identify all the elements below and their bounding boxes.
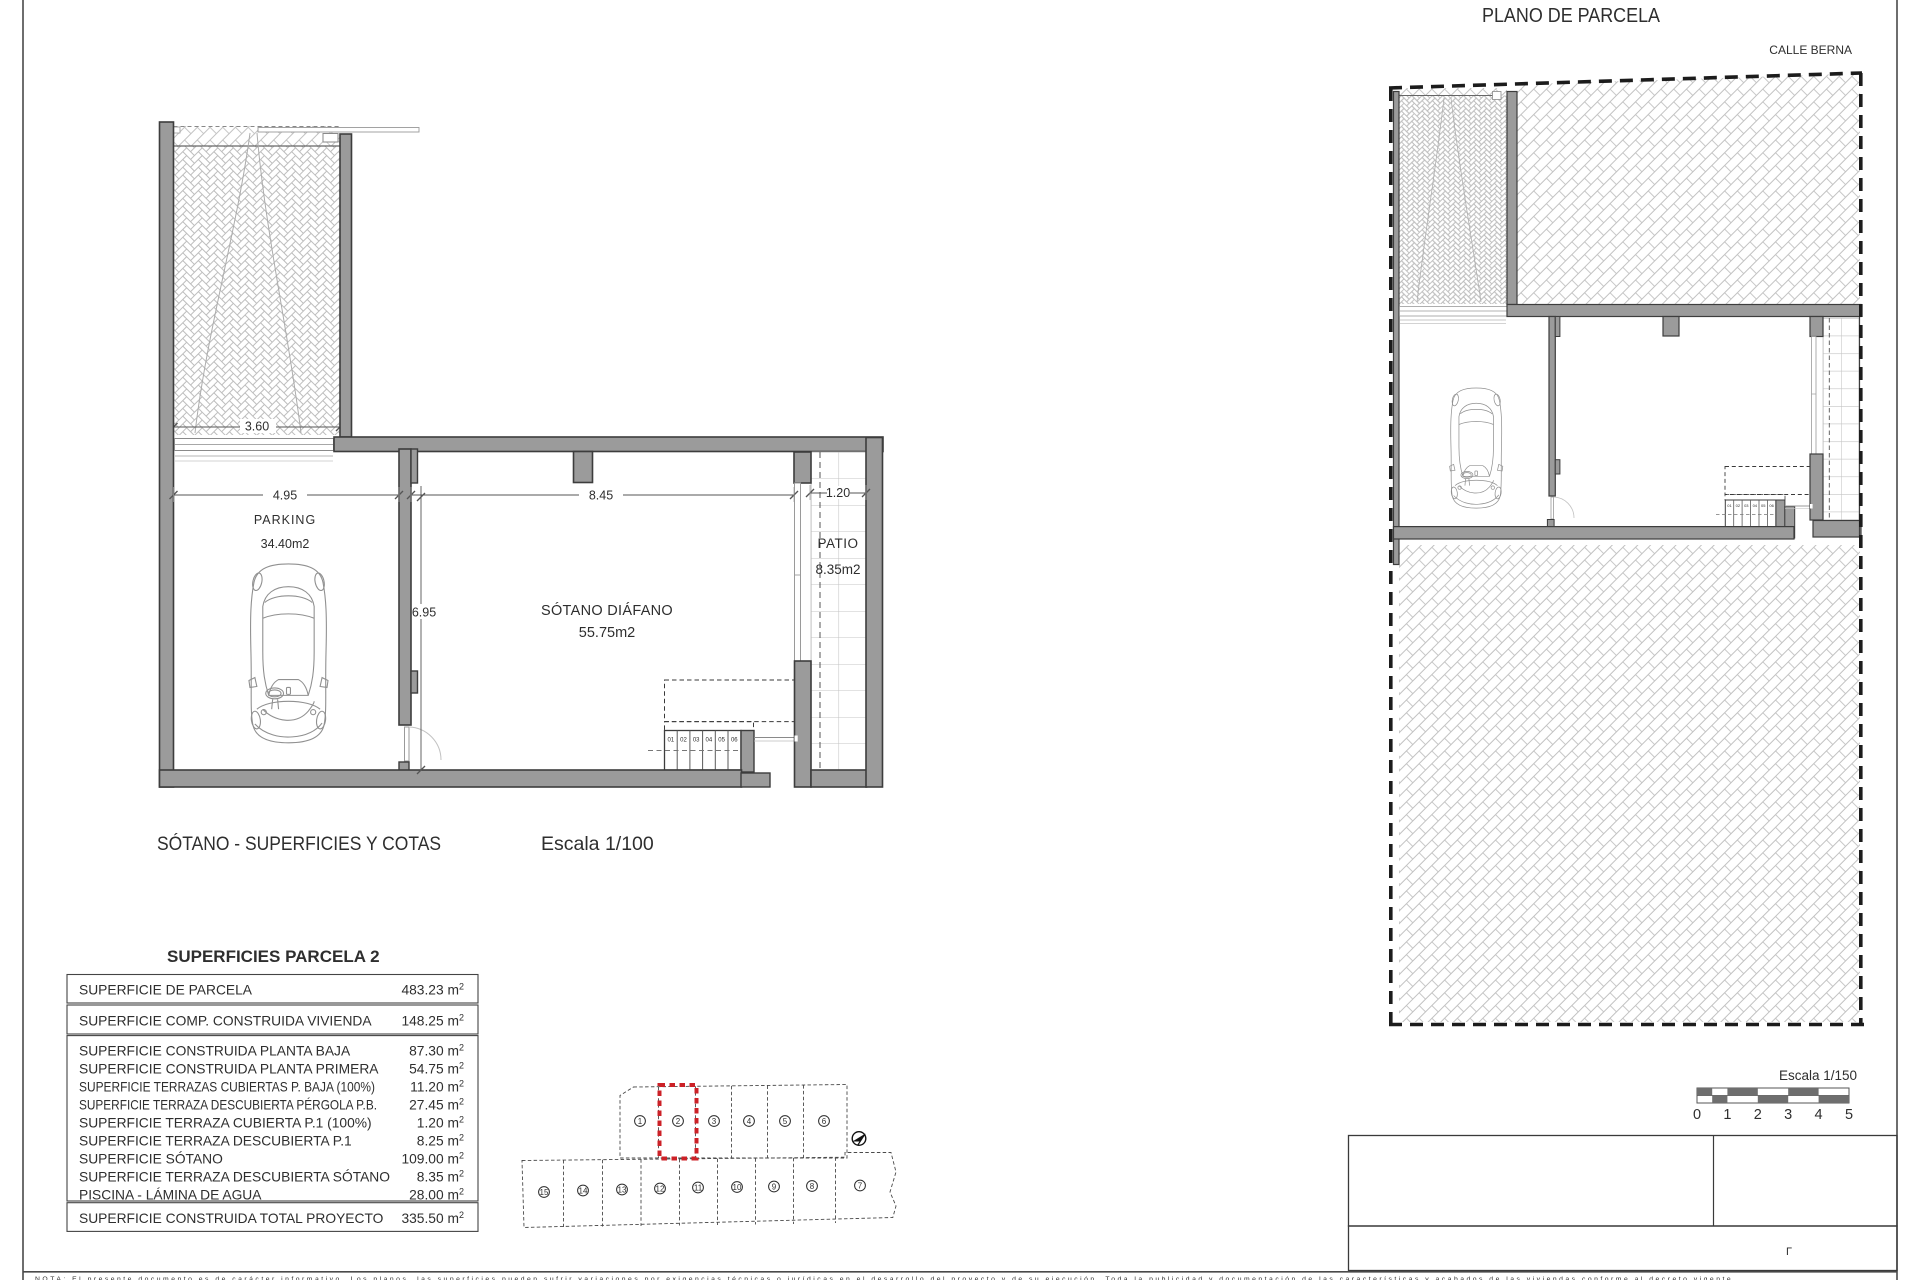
svg-text:1.20: 1.20 <box>826 486 850 500</box>
svg-text:34.40m2: 34.40m2 <box>261 537 310 551</box>
svg-text:SUPERFICIE DE PARCELA: SUPERFICIE DE PARCELA <box>79 983 253 998</box>
svg-text:4.95: 4.95 <box>273 489 297 503</box>
svg-text:8.25 m2: 8.25 m2 <box>417 1133 464 1149</box>
svg-text:SUPERFICIE CONSTRUIDA PLANTA P: SUPERFICIE CONSTRUIDA PLANTA PRIMERA <box>79 1062 379 1077</box>
svg-text:7: 7 <box>858 1182 863 1191</box>
svg-text:Escala 1/100: Escala 1/100 <box>541 833 654 855</box>
svg-text:03: 03 <box>693 738 700 744</box>
svg-text:2: 2 <box>676 1117 681 1126</box>
svg-text:2: 2 <box>1754 1107 1762 1123</box>
svg-text:06: 06 <box>1769 503 1774 508</box>
svg-text:SUPERFICIE TERRAZAS CUBIERTAS: SUPERFICIE TERRAZAS CUBIERTAS P. BAJA (1… <box>79 1080 375 1095</box>
svg-text:8: 8 <box>810 1182 815 1191</box>
svg-text:6.95: 6.95 <box>412 606 436 620</box>
svg-text:SÓTANO DIÁFANO: SÓTANO DIÁFANO <box>541 602 673 619</box>
svg-text:1: 1 <box>638 1117 643 1126</box>
svg-text:PISCINA - LÁMINA DE AGUA: PISCINA - LÁMINA DE AGUA <box>79 1187 262 1203</box>
svg-text:28.00 m2: 28.00 m2 <box>409 1187 464 1203</box>
svg-text:14: 14 <box>579 1187 588 1196</box>
svg-text:06: 06 <box>731 738 738 744</box>
svg-text:02: 02 <box>680 738 687 744</box>
svg-text:SUPERFICIE COMP. CONSTRUIDA VI: SUPERFICIE COMP. CONSTRUIDA VIVIENDA <box>79 1014 372 1029</box>
svg-text:SUPERFICIES PARCELA 2: SUPERFICIES PARCELA 2 <box>167 947 380 966</box>
svg-text:8.35m2: 8.35m2 <box>815 562 860 577</box>
svg-text:335.50 m2: 335.50 m2 <box>401 1210 464 1226</box>
svg-text:03: 03 <box>1744 503 1749 508</box>
svg-text:12: 12 <box>656 1185 665 1194</box>
svg-text:4: 4 <box>1815 1107 1823 1123</box>
svg-text:SUPERFICIE SÓTANO: SUPERFICIE SÓTANO <box>79 1151 223 1167</box>
svg-text:9: 9 <box>772 1183 777 1192</box>
svg-text:SUPERFICIE CONSTRUIDA PLANTA B: SUPERFICIE CONSTRUIDA PLANTA BAJA <box>79 1044 351 1059</box>
svg-text:05: 05 <box>1761 503 1766 508</box>
svg-text:02: 02 <box>1736 503 1741 508</box>
svg-text:148.25 m2: 148.25 m2 <box>401 1013 464 1029</box>
svg-text:01: 01 <box>1727 503 1732 508</box>
svg-text:1: 1 <box>1723 1107 1731 1123</box>
svg-text:27.45 m2: 27.45 m2 <box>409 1097 464 1113</box>
svg-text:8.45: 8.45 <box>589 489 613 503</box>
svg-text:11.20 m2: 11.20 m2 <box>410 1079 464 1095</box>
svg-text:PATIO: PATIO <box>817 536 858 551</box>
svg-text:6: 6 <box>822 1117 827 1126</box>
svg-text:109.00 m2: 109.00 m2 <box>401 1151 464 1167</box>
svg-text:SUPERFICIE TERRAZA DESCUBIERTA: SUPERFICIE TERRAZA DESCUBIERTA PÉRGOLA P… <box>79 1097 377 1113</box>
svg-text:483.23 m2: 483.23 m2 <box>401 982 464 998</box>
svg-text:11: 11 <box>694 1184 703 1193</box>
svg-text:3.60: 3.60 <box>245 420 269 434</box>
svg-text:0: 0 <box>1693 1107 1701 1123</box>
svg-text:4: 4 <box>747 1117 752 1126</box>
svg-text:CALLE BERNA: CALLE BERNA <box>1769 43 1852 57</box>
svg-text:87.30 m2: 87.30 m2 <box>409 1043 464 1059</box>
svg-text:3: 3 <box>712 1117 717 1126</box>
svg-text:55.75m2: 55.75m2 <box>579 625 635 641</box>
svg-text:13: 13 <box>618 1186 627 1195</box>
svg-text:04: 04 <box>706 738 713 744</box>
svg-text:SUPERFICIE TERRAZA CUBIERTA P.: SUPERFICIE TERRAZA CUBIERTA P.1 (100%) <box>79 1116 372 1131</box>
svg-text:PLANO DE PARCELA: PLANO DE PARCELA <box>1482 5 1661 27</box>
svg-text:5: 5 <box>1845 1107 1853 1123</box>
svg-text:PARKING: PARKING <box>254 513 316 527</box>
svg-text:8.35 m2: 8.35 m2 <box>417 1169 464 1185</box>
svg-text:04: 04 <box>1753 503 1758 508</box>
svg-text:SUPERFICIE TERRAZA DESCUBIERTA: SUPERFICIE TERRAZA DESCUBIERTA P.1 <box>79 1134 352 1149</box>
svg-text:Γ: Γ <box>1786 1246 1792 1258</box>
svg-text:Escala 1/150: Escala 1/150 <box>1779 1068 1857 1083</box>
svg-text:15: 15 <box>540 1188 549 1197</box>
svg-text:1.20 m2: 1.20 m2 <box>417 1115 464 1131</box>
svg-text:10: 10 <box>733 1183 742 1192</box>
svg-text:3: 3 <box>1784 1107 1792 1123</box>
svg-text:SUPERFICIE CONSTRUIDA TOTAL PR: SUPERFICIE CONSTRUIDA TOTAL PROYECTO <box>79 1211 384 1226</box>
svg-text:05: 05 <box>718 738 725 744</box>
svg-text:5: 5 <box>783 1117 788 1126</box>
svg-text:SUPERFICIE TERRAZA DESCUBIERTA: SUPERFICIE TERRAZA DESCUBIERTA SÓTANO <box>79 1169 390 1185</box>
svg-text:54.75 m2: 54.75 m2 <box>409 1061 464 1077</box>
svg-text:SÓTANO - SUPERFICIES Y COTAS: SÓTANO - SUPERFICIES Y COTAS <box>157 832 441 855</box>
svg-text:01: 01 <box>667 738 674 744</box>
